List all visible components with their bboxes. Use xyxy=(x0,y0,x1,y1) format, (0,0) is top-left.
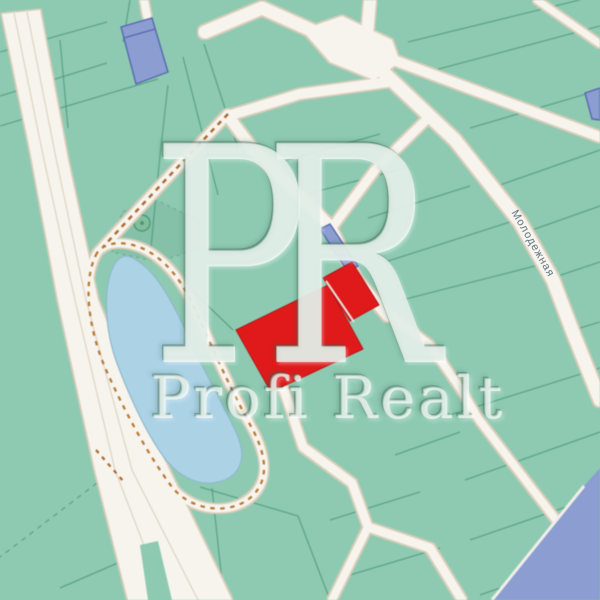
map-canvas: Молодежная PR Profi Realt xyxy=(0,0,600,600)
road xyxy=(366,0,370,48)
road-stub xyxy=(144,0,147,16)
cadastral-map xyxy=(0,0,600,600)
tree-icon xyxy=(140,221,144,225)
